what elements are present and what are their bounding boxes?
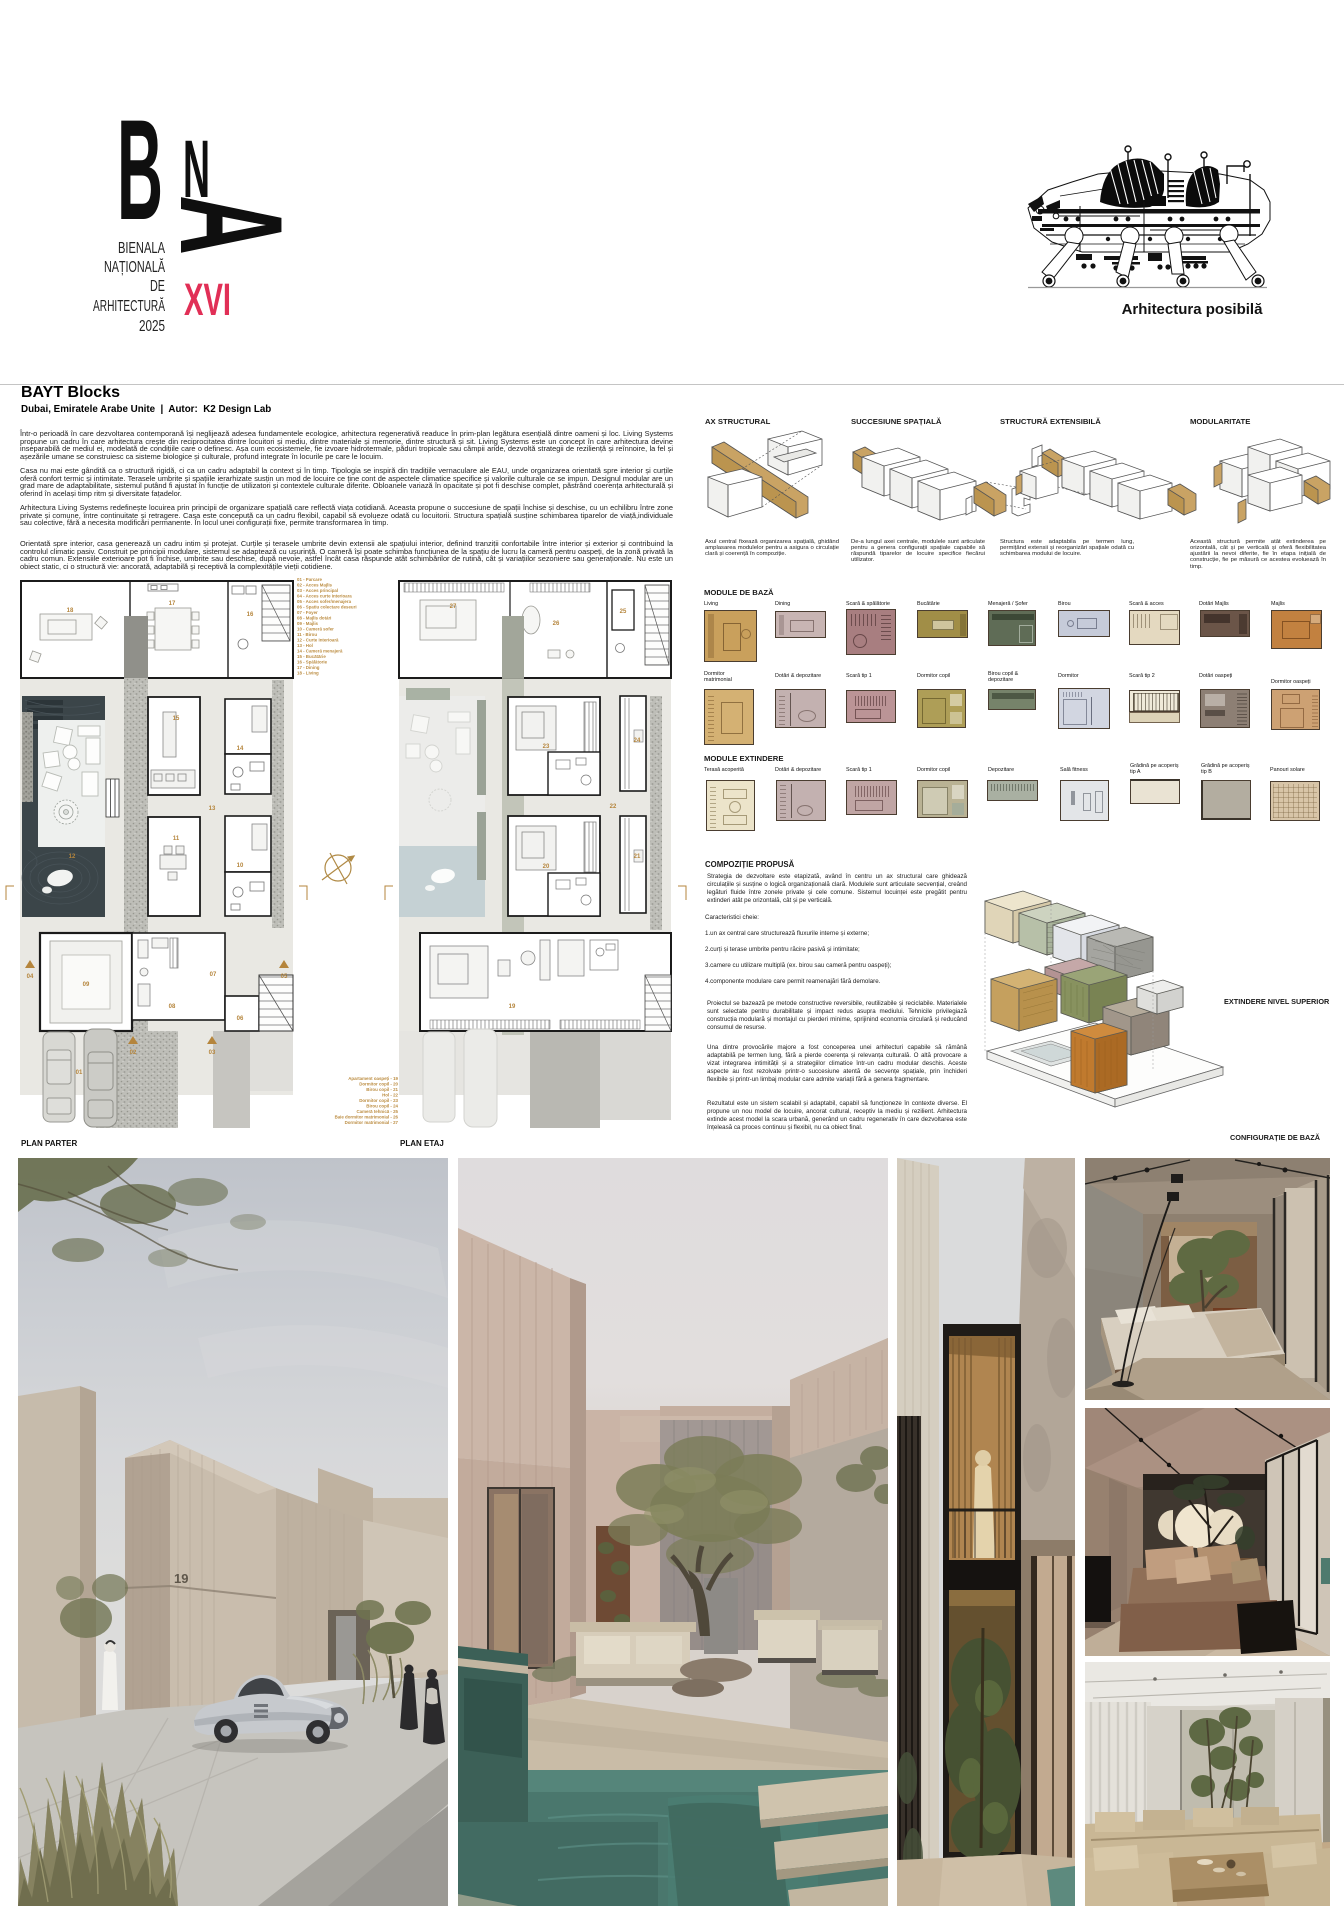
svg-text:19: 19 [174, 1571, 188, 1586]
svg-text:03 - Acces principal: 03 - Acces principal [297, 588, 338, 593]
svg-text:ARHITECTURĂ: ARHITECTURĂ [93, 296, 165, 315]
svg-text:06: 06 [237, 1016, 244, 1022]
svg-text:Dormitor copil - 23: Dormitor copil - 23 [359, 1098, 398, 1103]
svg-text:07 - Foyer: 07 - Foyer [297, 610, 318, 615]
svg-text:23: 23 [543, 744, 550, 750]
svg-text:02 - Acces Majlis: 02 - Acces Majlis [297, 583, 333, 588]
svg-text:17 - Dining: 17 - Dining [297, 665, 320, 670]
svg-text:15 - Bucātārie: 15 - Bucātārie [297, 654, 326, 659]
svg-text:08 - Majlis dotári: 08 - Majlis dotári [297, 616, 331, 621]
svg-text:11 - Birou: 11 - Birou [297, 632, 317, 637]
svg-text:16 - Spālātorie: 16 - Spālātorie [297, 660, 328, 665]
svg-text:13: 13 [209, 806, 216, 812]
svg-text:Dormitor copil - 20: Dormitor copil - 20 [359, 1082, 398, 1087]
svg-text:10 - Camerā sofer: 10 - Camerā sofer [297, 627, 334, 632]
svg-text:DE: DE [150, 278, 165, 295]
svg-text:14 - Camerā menajerā: 14 - Camerā menajerā [297, 649, 343, 654]
svg-text:17: 17 [169, 601, 176, 607]
svg-text:01 - Parcare: 01 - Parcare [297, 577, 322, 582]
svg-text:XVI: XVI [184, 274, 231, 325]
svg-text:Baie dormitor matrimonial - 26: Baie dormitor matrimonial - 26 [335, 1115, 399, 1120]
svg-text:14: 14 [237, 746, 244, 752]
svg-text:03: 03 [209, 1050, 216, 1056]
svg-text:2025: 2025 [139, 318, 165, 335]
svg-text:16: 16 [247, 612, 254, 618]
svg-text:09 - Majlis: 09 - Majlis [297, 621, 319, 626]
svg-text:24: 24 [634, 738, 641, 744]
svg-text:15: 15 [173, 716, 180, 722]
svg-text:06 - Spatiu colectare deseuri: 06 - Spatiu colectare deseuri [297, 605, 357, 610]
svg-text:Dormitor matrimonial - 27: Dormitor matrimonial - 27 [345, 1120, 399, 1125]
svg-text:04 - Acces curte interioara: 04 - Acces curte interioara [297, 594, 352, 599]
svg-text:PLAN ETAJ: PLAN ETAJ [400, 1139, 444, 1148]
svg-text:04: 04 [27, 974, 34, 980]
svg-text:Apartament oaspeți - 19: Apartament oaspeți - 19 [348, 1076, 398, 1081]
svg-text:PLAN PARTER: PLAN PARTER [21, 1139, 78, 1148]
svg-text:05 - Acces sofer/menajera: 05 - Acces sofer/menajera [297, 599, 352, 604]
svg-text:21: 21 [634, 854, 641, 860]
svg-text:09: 09 [83, 982, 90, 988]
svg-text:02: 02 [130, 1050, 137, 1056]
svg-text:Birou copil - 24: Birou copil - 24 [366, 1104, 398, 1109]
svg-text:22: 22 [610, 804, 617, 810]
svg-text:27: 27 [450, 604, 457, 610]
svg-text:13 - Hol: 13 - Hol [297, 643, 313, 648]
svg-text:19: 19 [509, 1004, 516, 1010]
svg-text:A: A [150, 195, 313, 255]
svg-text:Birou copil - 21: Birou copil - 21 [366, 1087, 398, 1092]
svg-text:25: 25 [620, 609, 627, 615]
svg-text:10: 10 [237, 863, 244, 869]
svg-text:11: 11 [173, 836, 180, 842]
svg-text:26: 26 [553, 621, 560, 627]
svg-text:18 - Living: 18 - Living [297, 671, 319, 676]
svg-text:18: 18 [67, 608, 74, 614]
svg-text:12 - Curte interioarā: 12 - Curte interioarā [297, 638, 339, 643]
svg-text:12: 12 [69, 854, 76, 860]
svg-text:07: 07 [210, 972, 217, 978]
svg-text:20: 20 [543, 864, 550, 870]
svg-text:05: 05 [281, 974, 288, 980]
svg-text:NAȚIONALĂ: NAȚIONALĂ [104, 257, 165, 276]
svg-text:BIENALA: BIENALA [118, 240, 165, 257]
svg-text:Camerā tehnicā - 25: Camerā tehnicā - 25 [357, 1109, 399, 1114]
svg-text:08: 08 [169, 1004, 176, 1010]
svg-text:01: 01 [76, 1070, 83, 1076]
svg-text:Hol - 22: Hol - 22 [382, 1093, 398, 1098]
